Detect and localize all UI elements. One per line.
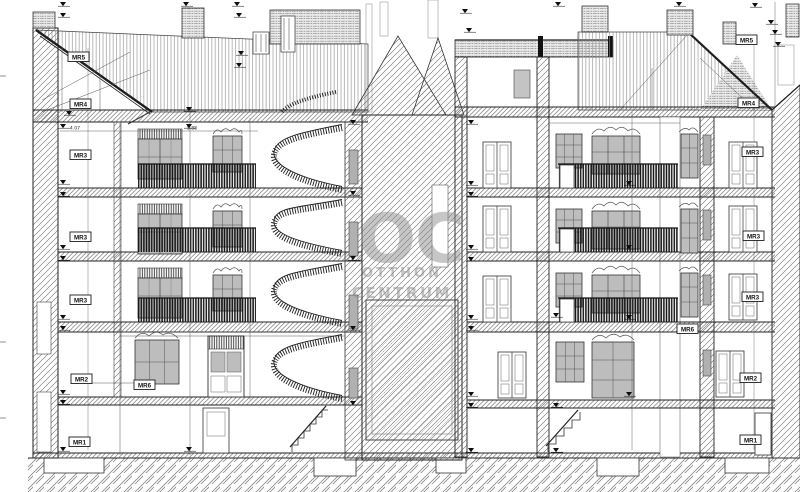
basement-door: [755, 413, 771, 455]
svg-text:MR6: MR6: [681, 327, 695, 334]
svg-text:MR2: MR2: [75, 377, 89, 384]
chimney: [582, 6, 608, 32]
room-label: MR4: [70, 99, 91, 109]
basement-stair: [292, 410, 328, 452]
foundation-footing: [314, 458, 356, 476]
right-roof: [578, 4, 799, 110]
svg-text:MR3: MR3: [74, 298, 88, 305]
room-label: MR3: [70, 150, 91, 160]
room-label: MR3: [743, 231, 764, 241]
watermark: OC OTTHON CENTRUM: [352, 200, 464, 302]
svg-text:MR4: MR4: [74, 102, 88, 109]
svg-text:MR3: MR3: [747, 234, 761, 241]
room-label: MR5: [736, 35, 757, 45]
room-label: MR3: [742, 292, 763, 302]
svg-text:MR1: MR1: [73, 440, 87, 447]
watermark-line1: OTTHON: [362, 266, 442, 281]
attic-window: [514, 70, 530, 98]
room-label: MR6: [134, 380, 155, 390]
room-label: MR2: [71, 374, 92, 384]
svg-text:MR5: MR5: [72, 55, 86, 62]
svg-text:MR3: MR3: [746, 150, 760, 157]
chimney: [786, 4, 799, 37]
room-label: MR5: [68, 52, 89, 62]
svg-text:MR1: MR1: [744, 438, 758, 445]
balcony-railings: [138, 164, 256, 322]
drawing-canvas: 4.07 5.88 MR5 MR4 MR3 MR3 MR3 MR2 MR1 MR…: [0, 0, 800, 492]
balcony-railings: [558, 164, 678, 322]
dimension-text: 4.07: [70, 126, 80, 132]
ground-window: [556, 342, 584, 382]
room-label: MR6: [677, 324, 698, 334]
room-label: MR3: [742, 147, 763, 157]
margin-ticks: [0, 76, 6, 418]
watermark-line2: CENTRUM: [352, 284, 452, 302]
chimney: [667, 10, 693, 35]
room-label: MR2: [740, 373, 761, 383]
chimney: [182, 8, 204, 38]
ground-section: [28, 458, 800, 492]
chimney: [33, 12, 55, 28]
svg-text:MR6: MR6: [138, 383, 152, 390]
foundation-footing: [44, 458, 104, 473]
right-basement-stair: [546, 410, 580, 452]
adjacent-building: [772, 85, 800, 458]
attic-slab: [455, 107, 775, 117]
svg-text:MR5: MR5: [740, 38, 754, 45]
room-label: MR1: [740, 435, 761, 445]
room-label: MR1: [69, 437, 90, 447]
room-label: MR4: [738, 98, 759, 108]
svg-text:MR3: MR3: [74, 235, 88, 242]
attic-slab: [33, 110, 368, 122]
foundation-footing: [597, 458, 639, 476]
svg-text:MR3: MR3: [746, 295, 760, 302]
foundation-footing: [725, 458, 769, 473]
chimney: [723, 22, 736, 44]
section-drawing: 4.07 5.88 MR5 MR4 MR3 MR3 MR3 MR2 MR1 MR…: [0, 0, 800, 492]
room-label: MR3: [70, 232, 91, 242]
svg-text:MR4: MR4: [742, 101, 756, 108]
svg-text:MR2: MR2: [744, 376, 758, 383]
room-label: MR3: [70, 295, 91, 305]
svg-text:MR3: MR3: [74, 153, 88, 160]
